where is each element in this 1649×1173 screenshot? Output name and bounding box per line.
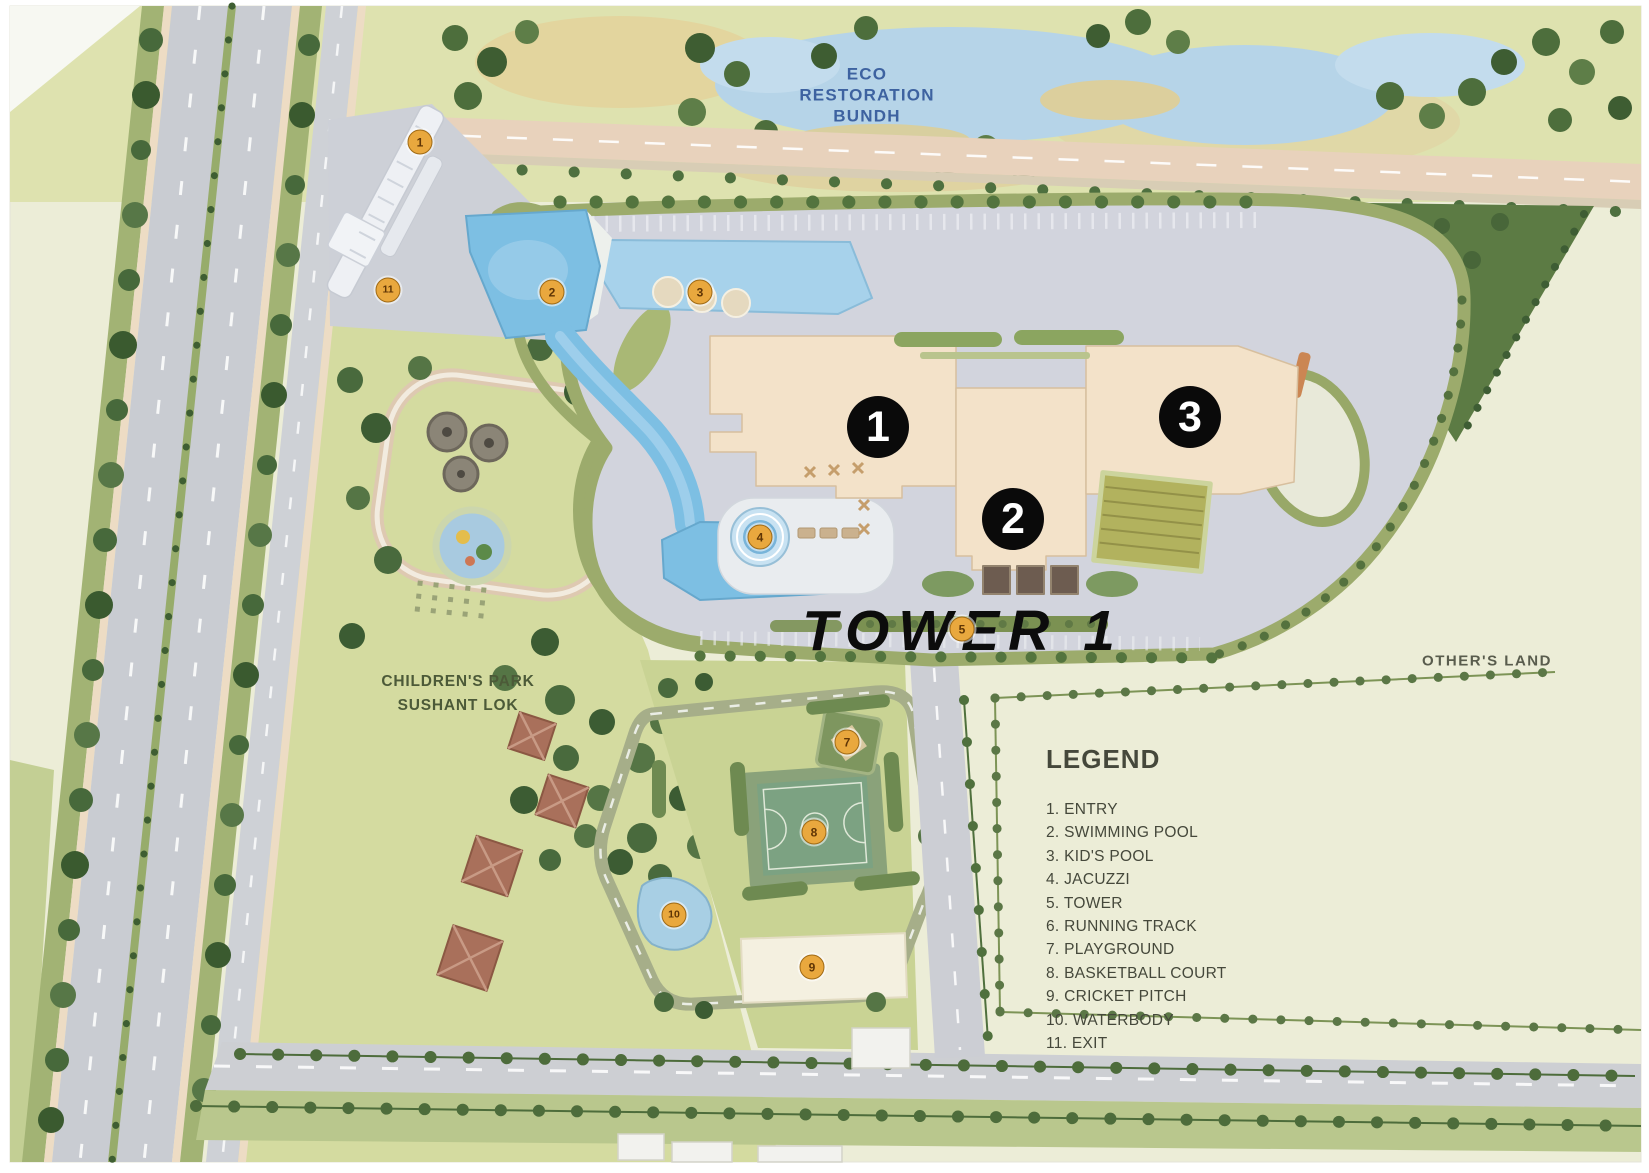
site-plan-artwork: [0, 0, 1649, 1173]
legend-list: 1. ENTRY 2. SWIMMING POOL 3. KID'S POOL …: [1046, 798, 1326, 1055]
kids-pool-dome: [722, 289, 750, 317]
eco-restoration-bundh-label: ECO RESTORATION BUNDH: [799, 64, 934, 127]
legend-item: 9. CRICKET PITCH: [1046, 985, 1326, 1008]
legend-item: 2. SWIMMING POOL: [1046, 821, 1326, 844]
hotspot-2[interactable]: 2: [982, 488, 1044, 550]
plan-marker-entry: 1: [408, 130, 433, 155]
legend-item: 8. BASKETBALL COURT: [1046, 962, 1326, 985]
childrens-park-label: CHILDREN'S PARK SUSHANT LOK: [381, 670, 534, 718]
legend-item: 5. TOWER: [1046, 892, 1326, 915]
legend-item: 4. JACUZZI: [1046, 868, 1326, 891]
plan-marker-jacuzzi: 4: [748, 525, 773, 550]
hotspot-1[interactable]: 1: [847, 396, 909, 458]
hedge-strip: [894, 332, 1002, 347]
legend-item: 7. PLAYGROUND: [1046, 938, 1326, 961]
entrance-canopies: [983, 566, 1078, 594]
others-land-label: OTHER'S LAND: [1422, 653, 1552, 670]
plan-marker-tower: 5: [950, 617, 975, 642]
kids-pool-dome: [653, 277, 683, 307]
garden-patch: [1094, 473, 1211, 572]
legend-item: 3. KID'S POOL: [1046, 845, 1326, 868]
plan-marker-exit: 11: [376, 278, 401, 303]
legend-item: 1. ENTRY: [1046, 798, 1326, 821]
legend-item: 10. WATERBODY: [1046, 1009, 1326, 1032]
plan-marker-waterbody: 10: [662, 903, 687, 928]
plan-marker-basketball-court: 8: [802, 820, 827, 845]
plan-marker-cricket-pitch: 9: [800, 955, 825, 980]
legend-item: 11. EXIT: [1046, 1032, 1326, 1055]
hotspot-3[interactable]: 3: [1159, 386, 1221, 448]
legend-title: LEGEND: [1046, 744, 1160, 775]
site-plan-canvas: ECO RESTORATION BUNDH CHILDREN'S PARK SU…: [0, 0, 1649, 1173]
plan-marker-kids-pool: 3: [688, 280, 713, 305]
park-splash-pad: [436, 510, 508, 582]
sun-loungers: [798, 528, 859, 538]
legend-item: 6. RUNNING TRACK: [1046, 915, 1326, 938]
plan-marker-playground: 7: [835, 730, 860, 755]
plan-marker-swimming-pool: 2: [540, 280, 565, 305]
